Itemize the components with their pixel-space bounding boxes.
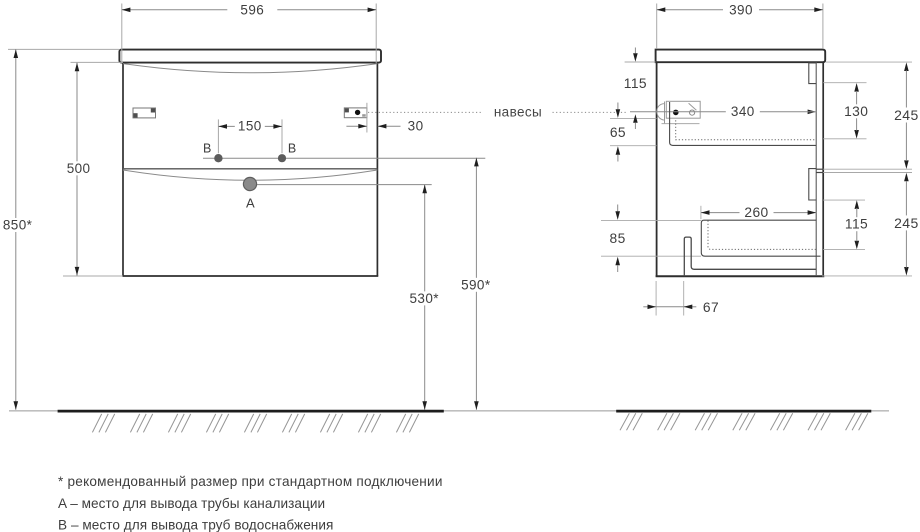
svg-text:245: 245 xyxy=(894,215,919,231)
svg-text:245: 245 xyxy=(894,107,919,123)
svg-text:A: A xyxy=(246,195,255,210)
svg-text:65: 65 xyxy=(610,125,626,140)
svg-text:B: B xyxy=(288,142,297,156)
svg-text:850*: 850* xyxy=(3,218,33,233)
svg-text:B – место для вывода труб водо: B – место для вывода труб водоснабжения xyxy=(58,517,333,532)
svg-text:B: B xyxy=(203,142,212,156)
svg-text:A – место для вывода трубы кан: A – место для вывода трубы канализации xyxy=(58,496,325,511)
svg-text:260: 260 xyxy=(744,205,768,220)
svg-text:85: 85 xyxy=(610,231,626,246)
svg-text:596: 596 xyxy=(240,3,264,18)
svg-text:115: 115 xyxy=(845,217,868,232)
svg-text:150: 150 xyxy=(238,118,262,133)
svg-text:67: 67 xyxy=(703,300,719,315)
svg-text:115: 115 xyxy=(624,76,647,91)
svg-text:30: 30 xyxy=(408,119,424,134)
svg-text:500: 500 xyxy=(67,161,91,176)
svg-text:130: 130 xyxy=(844,104,868,119)
svg-text:390: 390 xyxy=(729,3,753,18)
svg-text:590*: 590* xyxy=(461,277,491,292)
svg-text:530*: 530* xyxy=(410,291,440,306)
svg-text:* рекомендованный размер при с: * рекомендованный размер при стандартном… xyxy=(58,474,443,489)
svg-text:340: 340 xyxy=(731,104,755,119)
svg-text:навесы: навесы xyxy=(494,105,542,120)
